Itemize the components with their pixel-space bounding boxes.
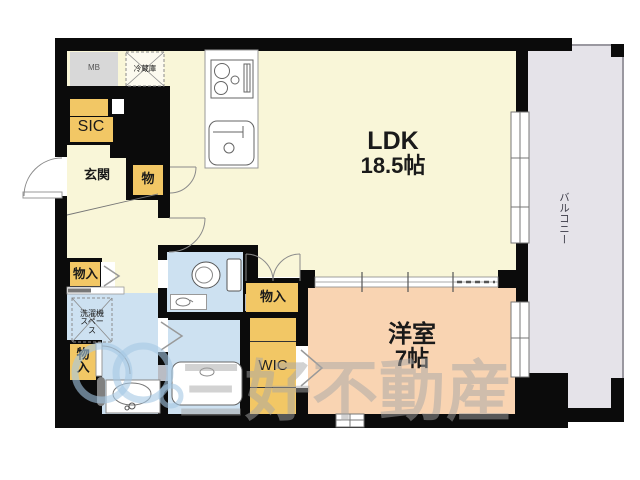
wic-door-opening: [296, 346, 308, 388]
wall-balcony-side-stub: [611, 378, 624, 422]
balcony-label: バルコニー: [558, 192, 569, 262]
sic-label: SIC: [70, 119, 112, 136]
bathroom-door-opening: [158, 318, 168, 352]
closet-entrance-label: 物: [134, 172, 162, 186]
toilet-door-opening: [158, 260, 168, 288]
wall-corner-bottom-right: [515, 373, 568, 428]
wall-top: [65, 38, 572, 51]
toilet-hand-basin-counter: [170, 294, 207, 310]
wall-partition-left-end: [300, 270, 315, 288]
meter-box-label: MB: [70, 64, 118, 72]
ldk-size: 18.5帖: [333, 154, 453, 177]
sic-nook: [112, 99, 124, 114]
wall-entrance-top: [110, 137, 158, 158]
ldk-label: LDK: [333, 128, 453, 154]
refrigerator-label: 冷蔵庫: [127, 65, 163, 73]
wall-wic-left: [240, 318, 250, 414]
entrance-label: 玄関: [84, 168, 110, 182]
balcony-floor: [528, 44, 624, 414]
wall-balcony-corner-post: [611, 44, 624, 57]
closet-washroom-label: 物入: [75, 347, 89, 381]
sic-upper-shelf: [70, 99, 108, 116]
wall-right: [516, 38, 528, 428]
wic-shelf-line-2: [250, 387, 296, 388]
wall-below-meter-box: [67, 86, 170, 97]
bedroom-label-block: 洋室 7帖: [352, 322, 472, 370]
closet-hall-door-opening: [101, 262, 115, 287]
bedroom-size: 7帖: [352, 347, 472, 370]
bath-wall-stub: [158, 365, 168, 381]
ldk-label-block: LDK 18.5帖: [333, 128, 453, 177]
wic-label: WIC: [250, 358, 296, 374]
wall-bottom: [55, 414, 528, 428]
bedroom-label: 洋室: [352, 322, 472, 347]
wall-left: [55, 38, 67, 428]
wall-partition-right-end: [498, 270, 516, 288]
wall-hall-ldk: [158, 200, 170, 218]
closet-hall-label: 物入: [70, 268, 101, 281]
front-door-opening: [55, 157, 67, 196]
floorplan-canvas: LDK 18.5帖 洋室 7帖 バルコニー 玄関 SIC WIC MB 冷蔵庫 …: [0, 0, 640, 480]
closet-ldk-label: 物入: [253, 290, 293, 304]
bathroom-floor: [165, 318, 245, 414]
wic-shelf-line-1: [250, 341, 296, 342]
washer-space-label: 洗濯機スペース: [77, 310, 107, 335]
